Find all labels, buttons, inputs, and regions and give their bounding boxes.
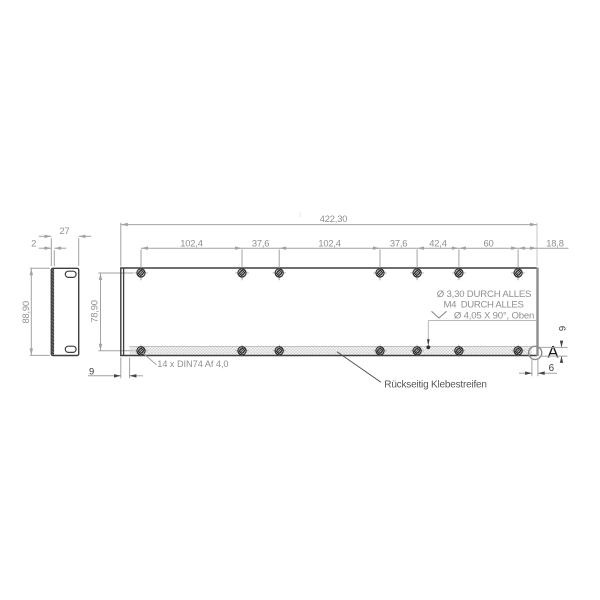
svg-text:Ø 3,30 DURCH ALLES: Ø 3,30 DURCH ALLES (437, 289, 532, 300)
svg-text:102,4: 102,4 (318, 237, 340, 248)
svg-text:A: A (547, 344, 558, 362)
svg-text:78,90: 78,90 (89, 300, 100, 322)
svg-text:60: 60 (483, 237, 493, 248)
svg-text:37,6: 37,6 (252, 237, 269, 248)
svg-text:M4 DURCH ALLES: M4 DURCH ALLES (443, 300, 523, 311)
svg-text:9: 9 (89, 365, 94, 376)
svg-text:422,30: 422,30 (320, 213, 347, 224)
svg-text:2: 2 (31, 238, 36, 249)
svg-text:37,6: 37,6 (390, 237, 407, 248)
svg-text:9: 9 (557, 326, 568, 331)
svg-text:Ø 4,05 X 90°, Oben: Ø 4,05 X 90°, Oben (454, 310, 534, 321)
svg-text:42,4: 42,4 (429, 237, 446, 248)
svg-text:6: 6 (549, 363, 555, 374)
svg-text:102,4: 102,4 (180, 237, 202, 248)
svg-text:88,90: 88,90 (20, 301, 31, 323)
svg-text:14 x DIN74 Af 4,0: 14 x DIN74 Af 4,0 (157, 359, 228, 369)
svg-text:18,8: 18,8 (546, 238, 563, 249)
svg-text:27: 27 (59, 225, 69, 236)
svg-text:Rückseitig Klebestreifen: Rückseitig Klebestreifen (384, 380, 486, 391)
